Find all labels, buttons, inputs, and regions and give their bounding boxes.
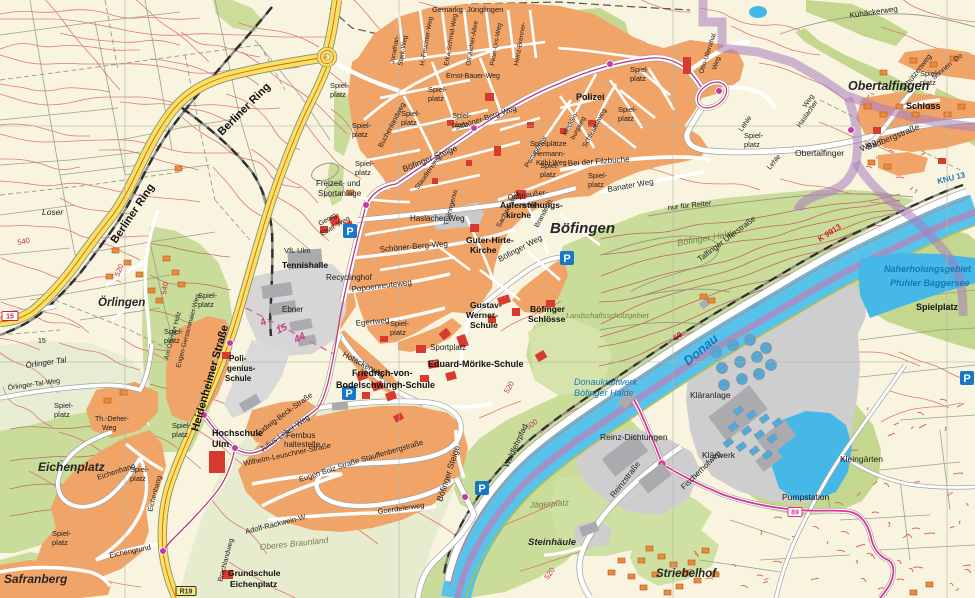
svg-text:Spiel-: Spiel-	[52, 529, 72, 538]
svg-text:Böfinger Halde: Böfinger Halde	[574, 388, 634, 398]
svg-text:Polizei: Polizei	[576, 92, 605, 102]
svg-text:platz: platz	[920, 78, 936, 87]
svg-text:Bodelschwingh-Schule: Bodelschwingh-Schule	[336, 380, 435, 390]
svg-text:platz: platz	[198, 300, 214, 309]
svg-text:Spiel-: Spiel-	[630, 65, 650, 74]
svg-text:Spiel-: Spiel-	[130, 465, 150, 474]
svg-text:Eduard-Mörike-Schule: Eduard-Mörike-Schule	[428, 359, 524, 369]
svg-text:Pfuhler Baggersee: Pfuhler Baggersee	[890, 278, 970, 288]
svg-text:Ebner: Ebner	[282, 305, 304, 314]
svg-text:Schloss: Schloss	[906, 101, 941, 111]
svg-text:Spiel-: Spiel-	[428, 85, 448, 94]
svg-text:platz: platz	[401, 118, 417, 127]
svg-text:platz: platz	[54, 410, 70, 419]
svg-text:Spiel-: Spiel-	[198, 291, 218, 300]
svg-text:Tennishalle: Tennishalle	[282, 260, 328, 270]
svg-text:platz: platz	[744, 140, 760, 149]
svg-text:Loser: Loser	[42, 207, 64, 217]
svg-text:Landschaftsschutzgebiet: Landschaftsschutzgebiet	[566, 311, 649, 320]
svg-text:Schule: Schule	[470, 320, 498, 330]
svg-text:Ernst-Bauer-Weg: Ernst-Bauer-Weg	[446, 73, 500, 80]
svg-text:platz: platz	[352, 130, 368, 139]
svg-text:Recyclinghof: Recyclinghof	[326, 273, 373, 282]
svg-text:genius-: genius-	[227, 364, 256, 373]
svg-text:Obertalfinger: Obertalfinger	[795, 148, 844, 158]
svg-text:Donaukraftwerk: Donaukraftwerk	[574, 377, 638, 387]
svg-text:15: 15	[6, 314, 14, 321]
svg-text:Spiel-: Spiel-	[452, 111, 472, 120]
svg-text:89: 89	[791, 510, 799, 517]
svg-text:Eichenplatz: Eichenplatz	[230, 579, 277, 589]
svg-text:P: P	[478, 483, 485, 495]
svg-text:platz: platz	[618, 114, 634, 123]
svg-text:Hermann-: Hermann-	[534, 151, 566, 158]
svg-text:Th.-Deher-: Th.-Deher-	[95, 416, 130, 423]
svg-text:Naherholungsgebiet: Naherholungsgebiet	[884, 264, 972, 274]
svg-text:P: P	[346, 226, 353, 238]
svg-text:Eichenplatz: Eichenplatz	[38, 460, 105, 474]
svg-text:Kläranlage: Kläranlage	[690, 390, 731, 400]
svg-text:VfL Ulm: VfL Ulm	[284, 246, 310, 255]
svg-text:R19: R19	[180, 589, 193, 596]
svg-text:Spiel-: Spiel-	[54, 401, 74, 410]
svg-text:Gustav-: Gustav-	[470, 300, 502, 310]
svg-text:platz: platz	[330, 90, 346, 99]
svg-text:Steinhäule: Steinhäule	[528, 537, 577, 548]
svg-text:Werner-: Werner-	[466, 310, 498, 320]
svg-text:Spiel-: Spiel-	[920, 69, 940, 78]
svg-text:Böfinger: Böfinger	[530, 304, 566, 314]
svg-text:Spiel-: Spiel-	[164, 327, 184, 336]
svg-text:Guter-Hirte-: Guter-Hirte-	[466, 235, 514, 245]
svg-text:Sportplatz: Sportplatz	[430, 343, 466, 352]
svg-text:Haslacher Weg: Haslacher Weg	[410, 214, 465, 223]
svg-text:Spiel-: Spiel-	[352, 121, 372, 130]
svg-text:platz: platz	[540, 170, 556, 179]
svg-text:Ulm: Ulm	[212, 439, 229, 449]
svg-text:Spielplätze: Spielplätze	[530, 139, 567, 148]
svg-text:platz: platz	[164, 336, 180, 345]
svg-text:platz: platz	[452, 120, 468, 129]
svg-text:Pumpstation: Pumpstation	[782, 492, 830, 502]
svg-text:platz: platz	[390, 328, 406, 337]
svg-text:platz: platz	[588, 180, 604, 189]
svg-text:Spiel-: Spiel-	[330, 81, 350, 90]
svg-text:Freizeit- und: Freizeit- und	[316, 179, 360, 188]
svg-text:Spiel-: Spiel-	[588, 171, 608, 180]
svg-text:Sportanlage: Sportanlage	[318, 189, 362, 198]
svg-text:platz: platz	[355, 168, 371, 177]
svg-text:Spiel-: Spiel-	[172, 421, 192, 430]
svg-text:P: P	[963, 373, 970, 385]
svg-text:Obertalfingen: Obertalfingen	[848, 79, 930, 93]
svg-text:Spiel-: Spiel-	[401, 109, 421, 118]
svg-text:P: P	[563, 253, 570, 265]
svg-text:Spielplatz: Spielplatz	[916, 302, 959, 312]
svg-text:Kleingärten: Kleingärten	[840, 454, 883, 464]
svg-text:platz: platz	[428, 94, 444, 103]
svg-text:Örlingen: Örlingen	[98, 296, 145, 309]
svg-text:Poli-: Poli-	[229, 354, 247, 363]
svg-text:Safranberg: Safranberg	[4, 572, 68, 586]
svg-text:Friedrich-von-: Friedrich-von-	[352, 368, 413, 378]
svg-text:Weg: Weg	[102, 425, 116, 432]
svg-text:Schule: Schule	[225, 374, 252, 383]
svg-text:Striebelhof: Striebelhof	[656, 568, 717, 580]
svg-text:Schlösse: Schlösse	[528, 314, 566, 324]
svg-text:Gemarkg. Jünglingen: Gemarkg. Jünglingen	[432, 5, 503, 14]
svg-text:Böfingen: Böfingen	[550, 220, 615, 237]
svg-text:platz: platz	[172, 430, 188, 439]
svg-text:Grundschule: Grundschule	[228, 568, 281, 578]
svg-text:platz: platz	[130, 474, 146, 483]
svg-text:Spiel-: Spiel-	[618, 105, 638, 114]
svg-text:Reinz-Dichtungen: Reinz-Dichtungen	[600, 432, 668, 442]
svg-text:platz: platz	[630, 74, 646, 83]
svg-text:Spiel-: Spiel-	[390, 319, 410, 328]
svg-text:Köhl-Weg: Köhl-Weg	[536, 160, 567, 167]
svg-text:Spiel-: Spiel-	[355, 159, 375, 168]
svg-text:Kirche: Kirche	[470, 245, 497, 255]
svg-text:platz: platz	[52, 538, 68, 547]
svg-text:15: 15	[38, 338, 46, 345]
svg-text:Spiel-: Spiel-	[744, 131, 764, 140]
